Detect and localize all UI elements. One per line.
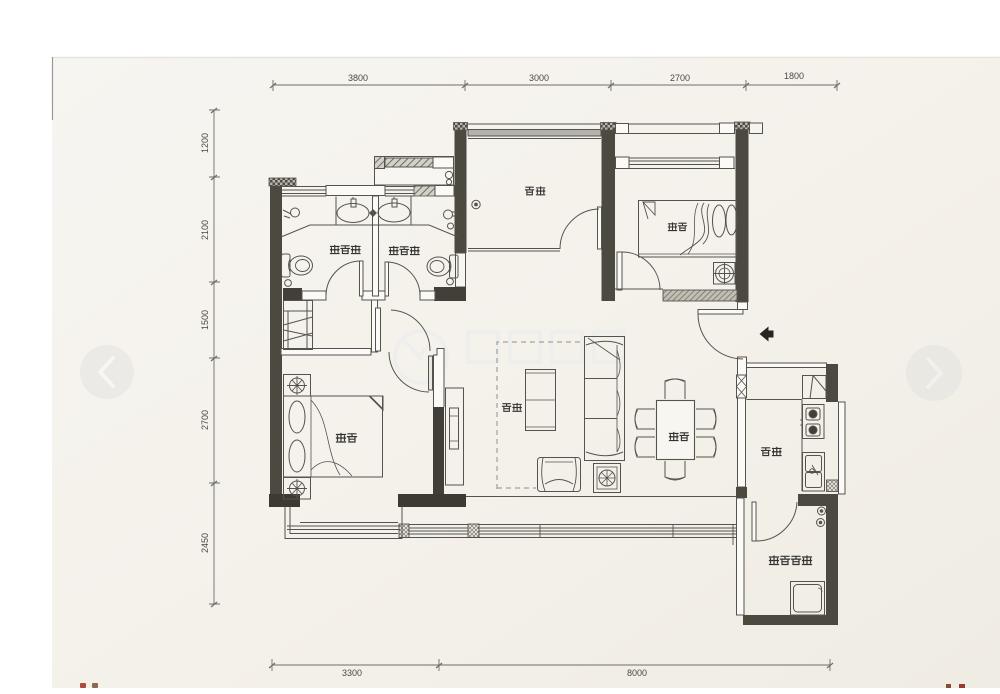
svg-text:1500: 1500 <box>200 310 210 330</box>
svg-text:1800: 1800 <box>784 71 804 81</box>
svg-text:8000: 8000 <box>627 668 647 678</box>
svg-text:3000: 3000 <box>529 73 549 83</box>
svg-text:2700: 2700 <box>670 73 690 83</box>
svg-text:2100: 2100 <box>200 220 210 240</box>
svg-text:3800: 3800 <box>348 73 368 83</box>
svg-text:3300: 3300 <box>342 668 362 678</box>
svg-text:1200: 1200 <box>200 133 210 153</box>
svg-text:2700: 2700 <box>200 410 210 430</box>
svg-text:2450: 2450 <box>200 533 210 553</box>
